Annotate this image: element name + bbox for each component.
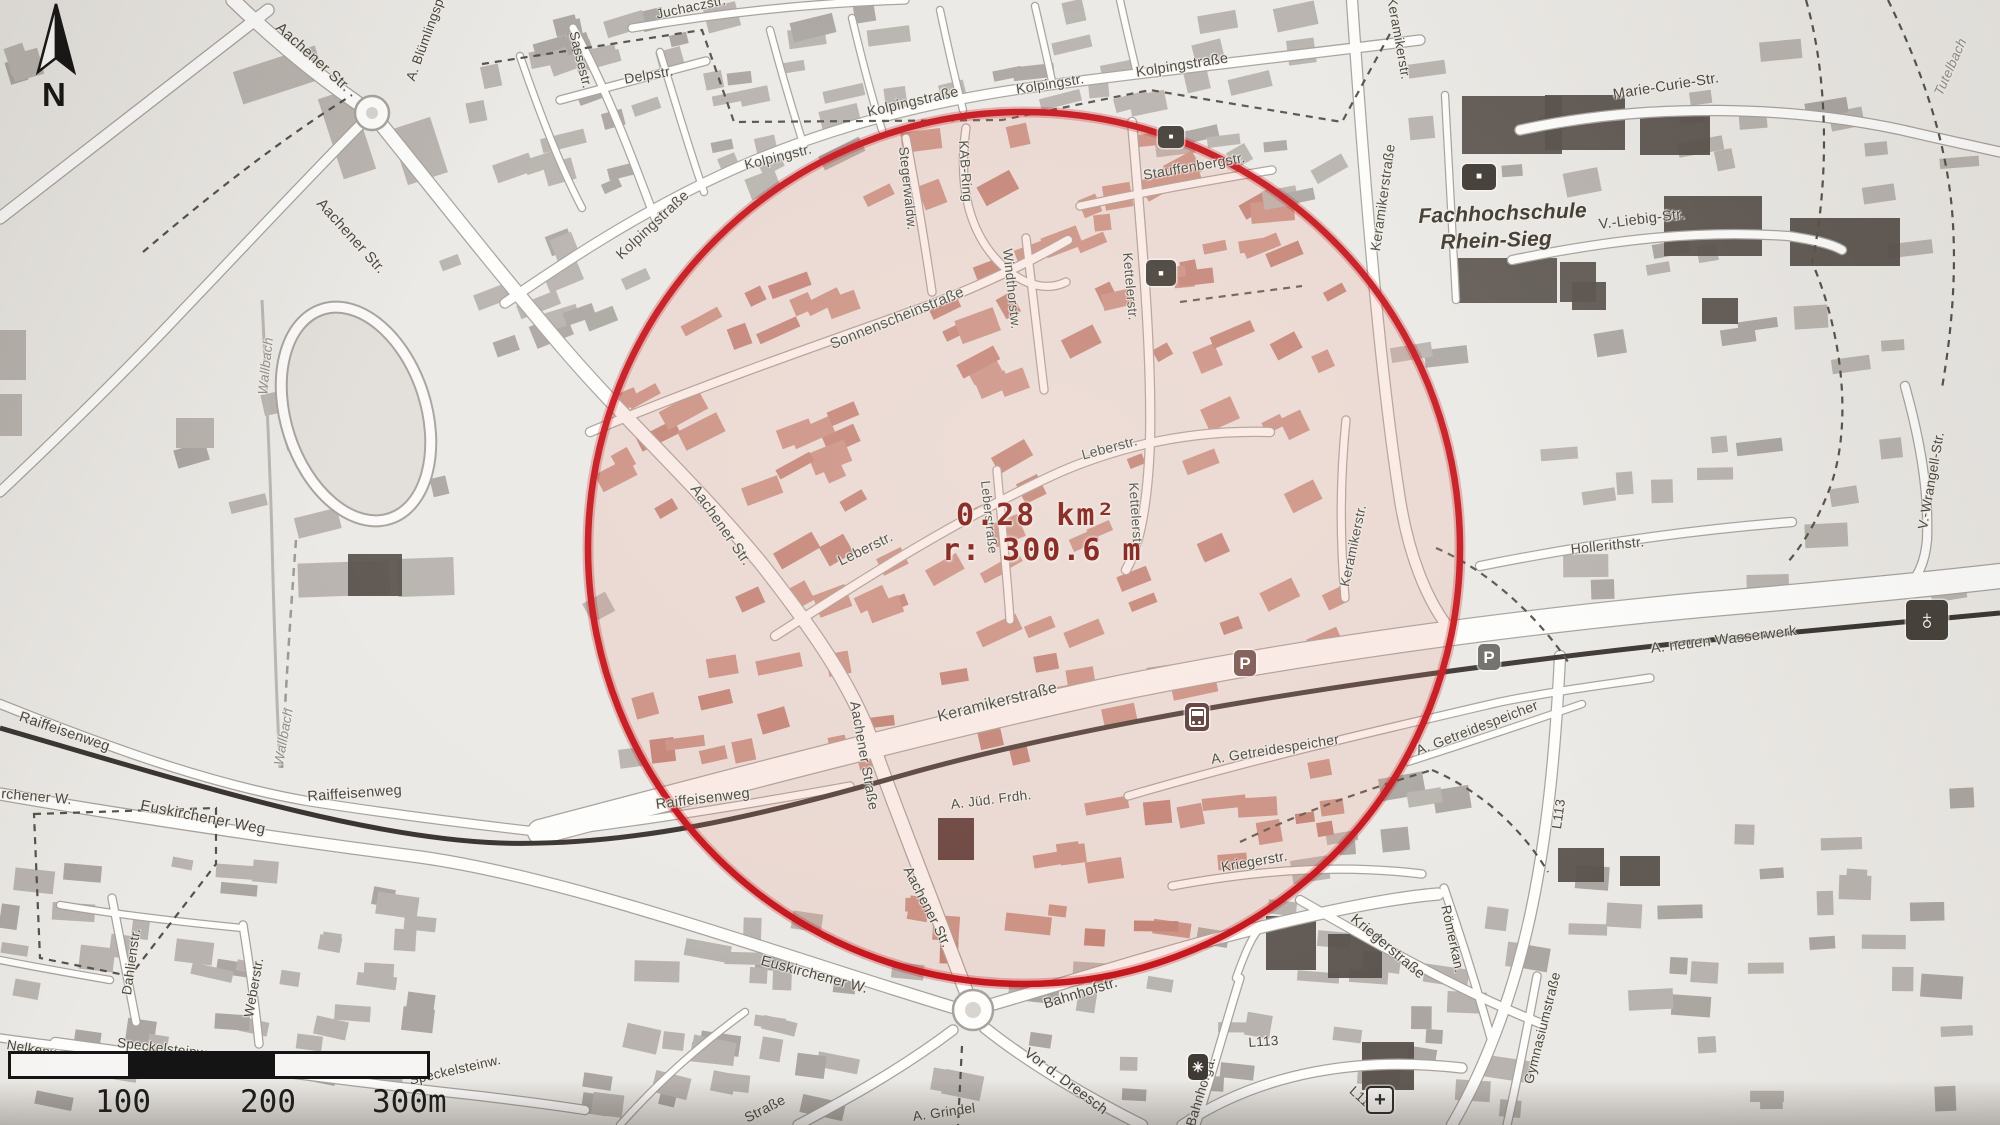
- church-icon: ♁: [1906, 600, 1948, 640]
- flower-icon: ✳: [1188, 1054, 1208, 1080]
- radius-value: r: 300.6 m: [942, 533, 1143, 568]
- map-canvas[interactable]: Aachener Str.A. Blümlingspd.Juchaczstr.S…: [0, 0, 2000, 1125]
- scale-label-200: 200: [240, 1084, 296, 1120]
- area-measurement-overlay: 0.28 km² r: 300.6 m: [942, 498, 1143, 568]
- scale-label-100: 100: [95, 1084, 151, 1120]
- map-label-rhein-sieg: Rhein-Sieg: [1440, 228, 1552, 253]
- map-label-l113: L113: [1248, 1034, 1279, 1050]
- poi-icon-campus: ■: [1462, 164, 1496, 190]
- parking-icon-inner: P: [1234, 650, 1256, 676]
- hospital-icon: +: [1366, 1086, 1394, 1114]
- scale-label-300m: 300m: [372, 1084, 447, 1120]
- map-label-kab-ring: KAB-Ring: [957, 140, 975, 202]
- map-label-fachhochschule: Fachhochschule: [1418, 200, 1587, 227]
- area-value: 0.28 km²: [942, 498, 1143, 533]
- parking-icon-outer: P: [1478, 644, 1500, 670]
- tram-stop-icon: [1185, 703, 1209, 731]
- poi-icon-2: ■: [1146, 260, 1176, 286]
- north-label: N: [42, 76, 66, 114]
- scale-bar: [8, 1051, 430, 1079]
- poi-icon-1: ■: [1158, 126, 1184, 148]
